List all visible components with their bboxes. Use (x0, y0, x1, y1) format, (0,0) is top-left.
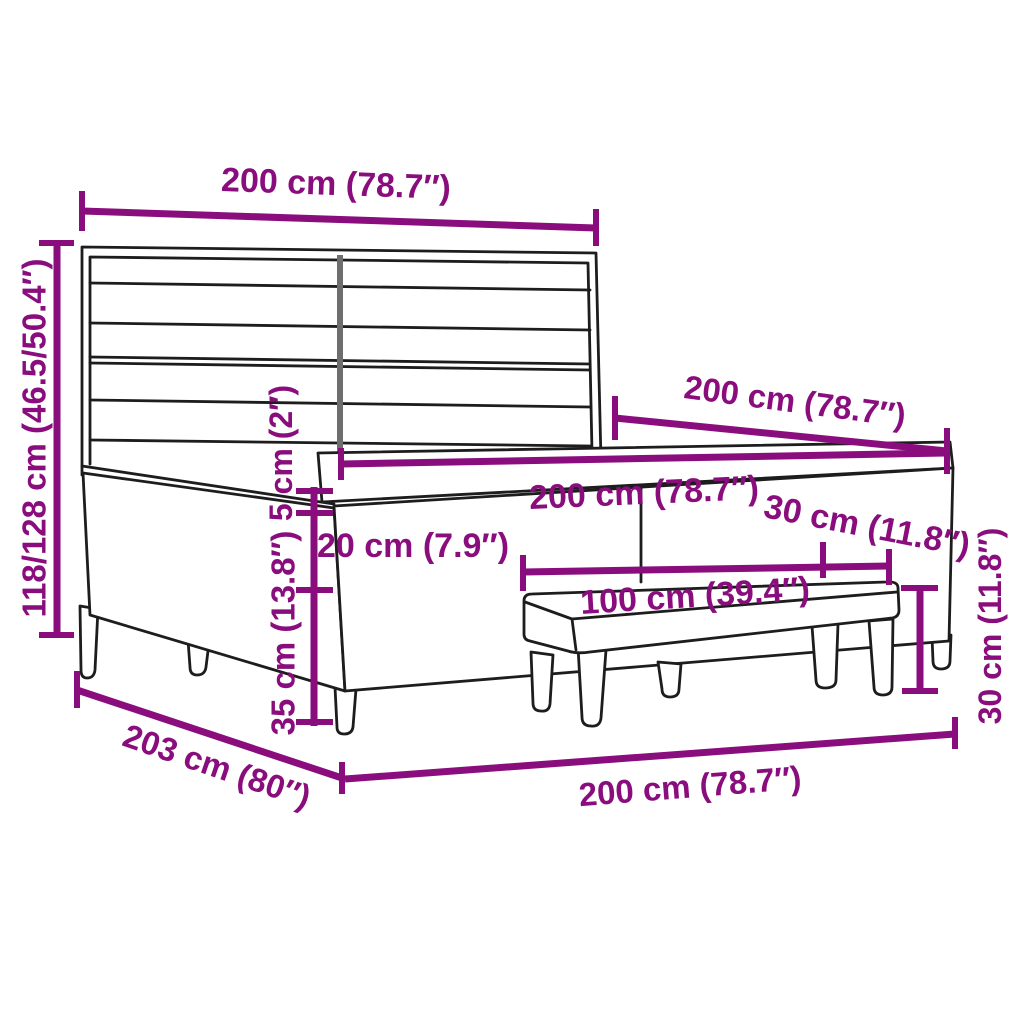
base-left-flank (83, 473, 345, 691)
dim-label-total-height: 118/128 cm (46.5/50.4″) (16, 259, 53, 618)
dimension-diagram: 200 cm (78.7″) 118/128 cm (46.5/50.4″) 2… (0, 0, 1024, 1024)
bench-leg (812, 624, 838, 688)
dim-line-headboard-width (82, 211, 596, 228)
bench-leg (869, 619, 893, 695)
diagram-canvas: 200 cm (78.7″) 118/128 cm (46.5/50.4″) 2… (0, 0, 1024, 1024)
dim-label-bench-height: 30 cm (11.8″) (972, 528, 1008, 725)
dim-label-headboard-width: 200 cm (78.7″) (220, 161, 451, 207)
dim-label-mattress-height: 20 cm (7.9″) (317, 527, 509, 565)
bench-leg (531, 652, 553, 711)
bench-leg (658, 662, 681, 697)
dim-label-base-height: 35 cm (13.8″) (265, 531, 302, 736)
bed-line-art (80, 247, 953, 734)
bed-leg-front-left (335, 687, 356, 734)
dim-label-frame-width: 200 cm (78.7″) (577, 759, 802, 813)
dim-label-bed-length: 200 cm (78.7″) (682, 368, 908, 434)
dim-label-topper-height: 5 cm (2″) (263, 385, 299, 521)
bench-leg (578, 647, 606, 726)
